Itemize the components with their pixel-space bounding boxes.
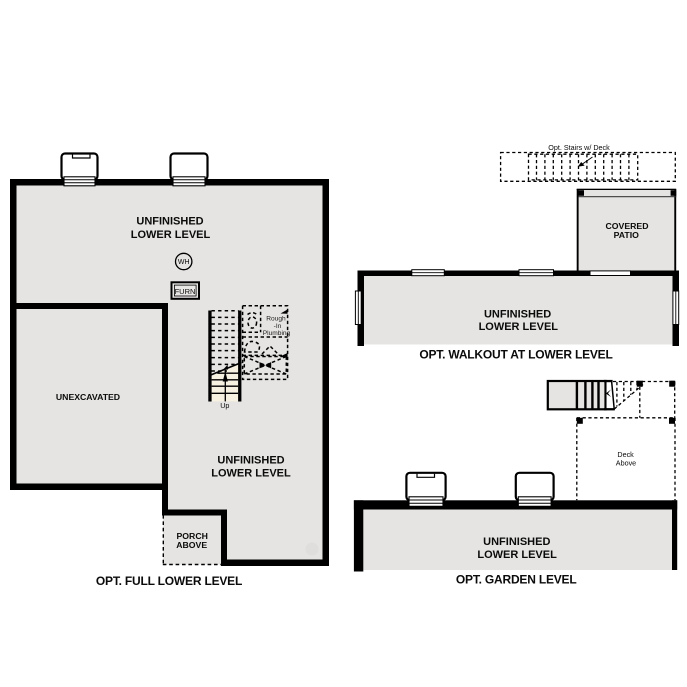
svg-text:-In: -In [274,323,282,330]
svg-text:LOWER LEVEL: LOWER LEVEL [211,468,291,480]
svg-text:OPT. GARDEN LEVEL: OPT. GARDEN LEVEL [456,573,577,587]
svg-text:LOWER LEVEL: LOWER LEVEL [131,229,211,241]
svg-text:Above: Above [616,458,636,467]
svg-text:UNFINISHED: UNFINISHED [484,308,551,320]
svg-text:UNFINISHED: UNFINISHED [136,216,203,228]
svg-text:PATIO: PATIO [614,230,639,240]
svg-text:Rough: Rough [266,316,286,323]
svg-text:OPT. FULL LOWER LEVEL: OPT. FULL LOWER LEVEL [96,574,242,588]
svg-text:ABOVE: ABOVE [176,540,207,550]
svg-text:UNFINISHED: UNFINISHED [217,455,284,467]
svg-text:FURN: FURN [175,287,196,296]
svg-text:Plumbing: Plumbing [263,330,291,337]
svg-text:Up: Up [220,401,229,410]
svg-text:OPT. WALKOUT AT LOWER LEVEL: OPT. WALKOUT AT LOWER LEVEL [419,348,612,362]
svg-text:Opt. Stairs w/ Deck: Opt. Stairs w/ Deck [548,143,610,152]
svg-text:LOWER LEVEL: LOWER LEVEL [479,321,559,333]
svg-text:WH: WH [178,259,190,266]
svg-text:LOWER LEVEL: LOWER LEVEL [477,549,557,561]
svg-text:UNFINISHED: UNFINISHED [483,536,550,548]
svg-text:UNEXCAVATED: UNEXCAVATED [56,392,120,402]
